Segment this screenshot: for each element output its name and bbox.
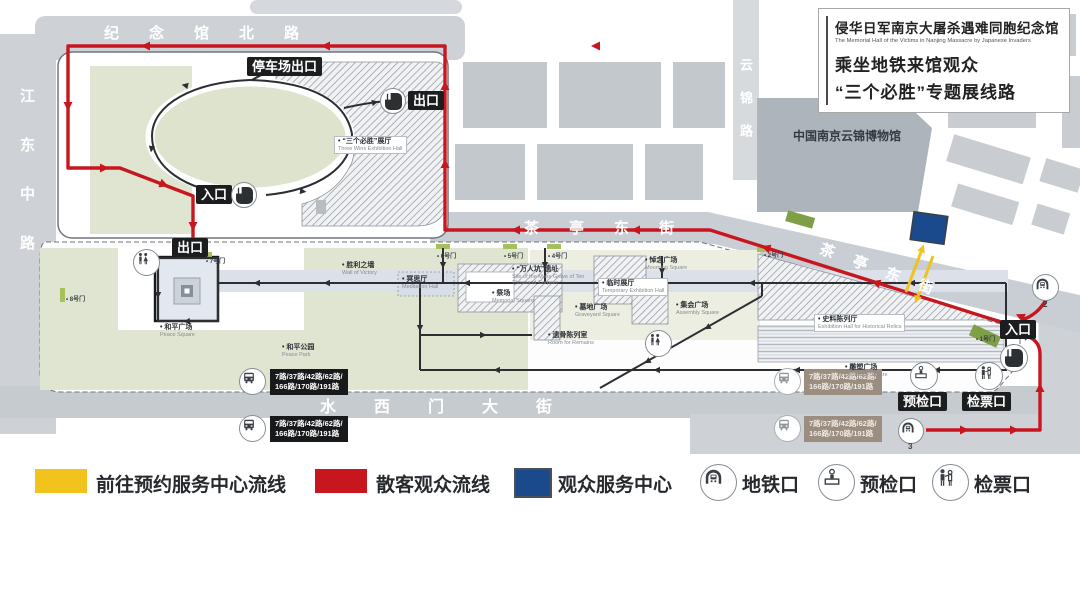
history-hall-zh: 史料陈列厅 xyxy=(818,316,901,324)
sculpture-square-zh: 雕塑广场 xyxy=(845,364,888,372)
peace-square-zh: 和平广场 xyxy=(160,324,195,332)
bus-routes-line2: 166路/170路/191路 xyxy=(275,429,343,439)
sculpture-square-label: 雕塑广场 Sculpture Square xyxy=(845,364,888,378)
route-title-line2: “三个必胜”专题展线路 xyxy=(835,78,1061,103)
title-box: 侵华日军南京大屠杀遇难同胞纪念馆 The Memorial Hall of th… xyxy=(818,8,1070,113)
gate-7-label: 7号门 xyxy=(206,256,225,265)
assembly-square-label: 集会广场 Assembly Square xyxy=(676,302,719,316)
bus-routes-line2: 166路/170路/191路 xyxy=(809,429,877,439)
park-exit-sign: 出口 xyxy=(172,238,208,257)
legend-swatch-visitor xyxy=(315,469,367,493)
graveyard-square-zh: 墓地广场 xyxy=(575,304,620,312)
memorial-square-en: Memorial Square xyxy=(492,298,534,304)
mass-grave-label: “万人坑”遗址 Site of the Mass Grave of Ten Th… xyxy=(512,266,597,286)
ticket-check-icon xyxy=(975,362,1003,390)
legend-label-visitor: 散客观众流线 xyxy=(376,470,490,497)
gate-4-label: 4号门 xyxy=(548,251,567,260)
gate-5-label: 5号门 xyxy=(504,251,523,260)
mass-grave-en: Site of the Mass Grave of Ten Thousand C… xyxy=(512,274,597,286)
metro-icon xyxy=(1032,274,1059,301)
three-wins-hall-zh: “三个必胜”展厅 xyxy=(338,138,403,146)
road-label-north: 纪念馆北路 xyxy=(104,22,329,43)
bus-routes-label: 7路/37路/42路/62路/ 166路/170路/191路 xyxy=(270,416,348,442)
victory-wall-label: 胜利之墙 Wall of Victory xyxy=(342,262,377,276)
ticket-check-icon xyxy=(932,464,969,501)
meditation-hall-zh: 冥思厅 xyxy=(402,276,438,284)
road-label-west: 江东中路 xyxy=(16,88,37,284)
legend-swatch-service-center xyxy=(514,468,552,498)
elevator-icon xyxy=(231,182,257,208)
annex-entrance-sign: 入口 xyxy=(196,185,232,204)
metro-exit-2-number: 2 xyxy=(1043,300,1047,309)
peace-square-label: 和平广场 Peace Square xyxy=(160,324,195,338)
temporary-hall-label: 临时展厅 Temporary Exhibition Hall xyxy=(598,278,668,296)
victory-wall-en: Wall of Victory xyxy=(342,270,377,276)
temporary-hall-en: Temporary Exhibition Hall xyxy=(602,288,664,294)
bus-routes-line1: 7路/37路/42路/62路/ xyxy=(809,419,877,429)
bus-routes-label: 7路/37路/42路/62路/ 166路/170路/191路 xyxy=(270,369,348,395)
precheck-icon xyxy=(818,464,855,501)
assembly-square-zh: 集会广场 xyxy=(676,302,719,310)
legend-label-ticket: 检票口 xyxy=(974,470,1031,497)
restroom-icon xyxy=(133,249,160,276)
main-entrance-sign: 入口 xyxy=(1000,320,1036,339)
bus-routes-line1: 7路/37路/42路/62路/ xyxy=(275,372,343,382)
bones-room-en: Room for Remains xyxy=(548,340,594,346)
road-label-south: 水西门大街 xyxy=(320,393,590,417)
hall-name-zh: 侵华日军南京大屠杀遇难同胞纪念馆 xyxy=(835,17,1061,37)
bus-stop-icon xyxy=(239,415,266,442)
restroom-icon xyxy=(645,330,672,357)
sculpture-square-en: Sculpture Square xyxy=(845,372,888,378)
three-wins-hall-en: Three Wins Exhibition Hall xyxy=(338,146,403,152)
gate-1-label: 1号门 xyxy=(976,334,995,343)
graveyard-square-en: Graveyard Square xyxy=(575,312,620,318)
road-label-east: 云锦路 xyxy=(736,58,755,157)
bus-routes-line2: 166路/170路/191路 xyxy=(275,382,343,392)
yunjin-museum-building xyxy=(757,98,932,212)
precheck-icon xyxy=(910,362,938,390)
graveyard-square-label: 墓地广场 Graveyard Square xyxy=(575,304,620,318)
bones-room-zh: 遗骨陈列室 xyxy=(548,332,594,340)
legend-label-precheck: 预检口 xyxy=(860,470,917,497)
ticket-check-sign: 检票口 xyxy=(962,392,1011,411)
memorial-square-zh: 祭场 xyxy=(492,290,534,298)
gate-8-label: 8号门 xyxy=(66,294,85,303)
legend-label-reservation: 前往预约服务中心流线 xyxy=(96,470,286,497)
history-hall-en: Exhibition Hall for Historical Relics xyxy=(818,324,901,330)
legend-swatch-reservation xyxy=(35,469,87,493)
yunjin-museum-label: 中国南京云锦博物馆 xyxy=(793,127,901,144)
assembly-square-en: Assembly Square xyxy=(676,310,719,316)
mourning-square-en: Mourning Square xyxy=(645,265,687,271)
legend-label-metro: 地铁口 xyxy=(742,470,799,497)
precheck-sign: 预检口 xyxy=(898,392,947,411)
history-hall-label: 史料陈列厅 Exhibition Hall for Historical Rel… xyxy=(814,314,905,332)
legend: 前往预约服务中心流线 散客观众流线 观众服务中心 地铁口 预检口 检票口 xyxy=(0,460,1080,510)
peace-square-en: Peace Square xyxy=(160,332,195,338)
bus-routes-line2: 166路/170路/191路 xyxy=(809,382,877,392)
mourning-square-zh: 悼念广场 xyxy=(645,257,687,265)
memorial-square-label: 祭场 Memorial Square xyxy=(492,290,534,304)
gate-6-label: 6号门 xyxy=(437,251,456,260)
bus-stop-icon xyxy=(239,368,266,395)
peace-park-label: 和平公园 Peace Park xyxy=(282,344,314,358)
elevator-icon xyxy=(1000,344,1028,372)
bus-routes-line1: 7路/37路/42路/62路/ xyxy=(275,419,343,429)
bus-stop-icon xyxy=(774,368,801,395)
title-rule xyxy=(826,16,828,105)
peace-park-en: Peace Park xyxy=(282,352,314,358)
metro-icon xyxy=(898,418,924,444)
meditation-hall-label: 冥思厅 Meditation Hall xyxy=(402,276,438,290)
road-label-chating-horizontal: 茶亭东街 xyxy=(524,217,704,238)
mourning-square-label: 悼念广场 Mourning Square xyxy=(645,257,687,271)
legend-label-service-center: 观众服务中心 xyxy=(558,470,672,497)
metro-icon xyxy=(700,464,737,501)
memorial-route-map: 纪念馆北路 江东中路 水西门大街 云锦路 茶亭东街 茶亭东街 中国南京云锦博物馆… xyxy=(0,0,1080,613)
victory-wall-zh: 胜利之墙 xyxy=(342,262,377,270)
meditation-hall-en: Meditation Hall xyxy=(402,284,438,290)
gate-2-label: 2号门 xyxy=(764,250,783,259)
parking-exit-sign: 停车场出口 xyxy=(247,57,322,76)
route-title-line1: 乘坐地铁来馆观众 xyxy=(835,51,1061,76)
hall-name-en: The Memorial Hall of the Victims in Nanj… xyxy=(835,38,1061,44)
temporary-hall-zh: 临时展厅 xyxy=(602,280,664,288)
bones-room-label: 遗骨陈列室 Room for Remains xyxy=(548,332,594,346)
metro-exit-3-number: 3 xyxy=(908,442,912,451)
three-wins-hall-label: “三个必胜”展厅 Three Wins Exhibition Hall xyxy=(334,136,407,154)
bus-routes-label: 7路/37路/42路/62路/ 166路/170路/191路 xyxy=(804,416,882,442)
mass-grave-zh: “万人坑”遗址 xyxy=(512,266,597,274)
elevator-icon xyxy=(380,88,406,114)
peace-park-zh: 和平公园 xyxy=(282,344,314,352)
bus-stop-icon xyxy=(774,415,801,442)
annex-exit-sign: 出口 xyxy=(408,91,444,110)
